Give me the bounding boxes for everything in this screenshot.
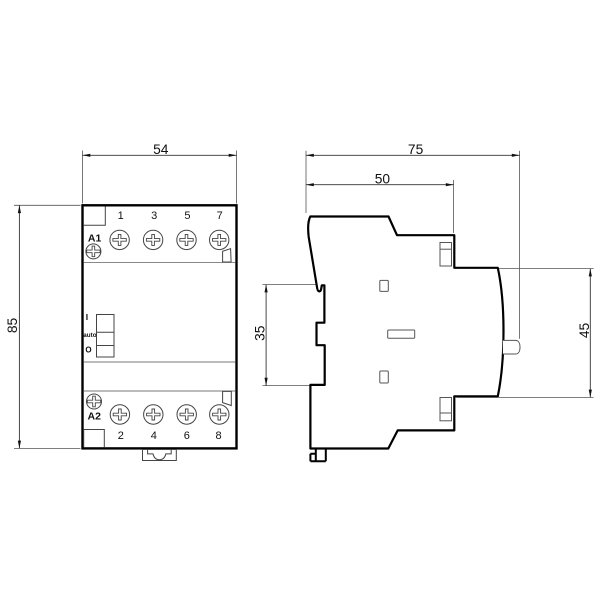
svg-text:A2: A2	[88, 411, 102, 423]
svg-text:5: 5	[184, 210, 190, 222]
svg-text:3: 3	[151, 210, 157, 222]
svg-text:54: 54	[153, 142, 169, 157]
svg-text:45: 45	[577, 323, 592, 339]
svg-text:7: 7	[217, 210, 223, 222]
svg-text:75: 75	[408, 142, 424, 157]
svg-text:O: O	[85, 346, 91, 355]
svg-text:I: I	[86, 312, 88, 322]
svg-text:50: 50	[375, 171, 391, 186]
svg-text:4: 4	[151, 430, 157, 442]
svg-text:8: 8	[216, 430, 222, 442]
svg-text:1: 1	[118, 210, 124, 222]
svg-text:auto: auto	[83, 332, 96, 339]
svg-text:35: 35	[253, 325, 268, 341]
svg-text:6: 6	[184, 430, 190, 442]
svg-text:A1: A1	[88, 233, 102, 245]
svg-text:85: 85	[5, 318, 20, 334]
svg-text:2: 2	[118, 430, 124, 442]
